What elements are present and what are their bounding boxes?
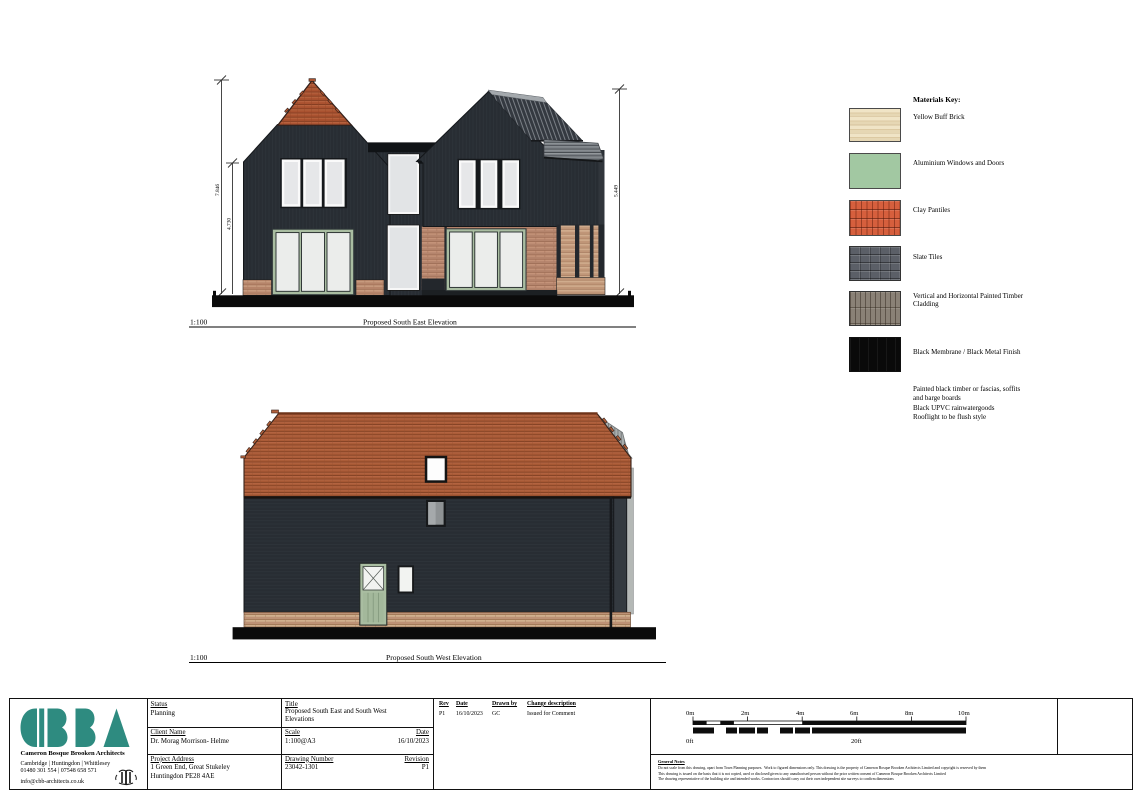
svg-text:0m: 0m <box>686 710 695 717</box>
svg-text:Proposed South West Elevation: Proposed South West Elevation <box>386 653 482 662</box>
svg-text:4.730: 4.730 <box>227 218 233 230</box>
svg-text:Proposed South East Elevation: Proposed South East Elevation <box>363 318 457 327</box>
svg-text:6m: 6m <box>850 710 859 717</box>
svg-text:10m: 10m <box>958 710 971 717</box>
svg-text:1:100: 1:100 <box>190 653 208 662</box>
svg-text:20ft: 20ft <box>851 738 862 745</box>
svg-text:8m: 8m <box>905 710 914 717</box>
svg-text:2m: 2m <box>741 710 750 717</box>
svg-text:0ft: 0ft <box>686 738 693 745</box>
svg-text:1:100: 1:100 <box>190 318 208 327</box>
svg-text:7.846: 7.846 <box>215 184 221 196</box>
svg-text:5.449: 5.449 <box>614 185 620 197</box>
svg-text:4m: 4m <box>796 710 805 717</box>
